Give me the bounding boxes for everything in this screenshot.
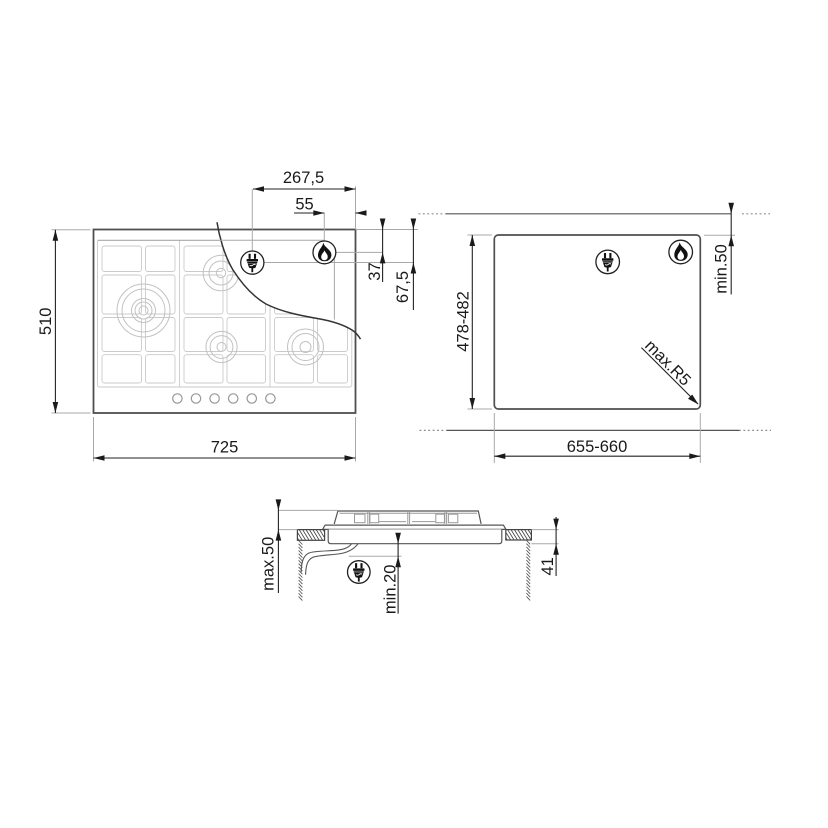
svg-text:725: 725	[211, 439, 239, 457]
svg-text:37: 37	[366, 262, 384, 280]
svg-text:41: 41	[539, 557, 557, 575]
svg-text:67,5: 67,5	[394, 271, 412, 303]
svg-text:655-660: 655-660	[567, 438, 628, 456]
svg-text:510: 510	[37, 308, 55, 336]
svg-text:267,5: 267,5	[283, 169, 324, 187]
svg-text:max.50: max.50	[259, 537, 277, 591]
svg-text:min.20: min.20	[382, 565, 400, 615]
svg-text:478-482: 478-482	[455, 291, 473, 352]
svg-text:min.50: min.50	[713, 244, 731, 294]
svg-text:55: 55	[295, 196, 313, 214]
